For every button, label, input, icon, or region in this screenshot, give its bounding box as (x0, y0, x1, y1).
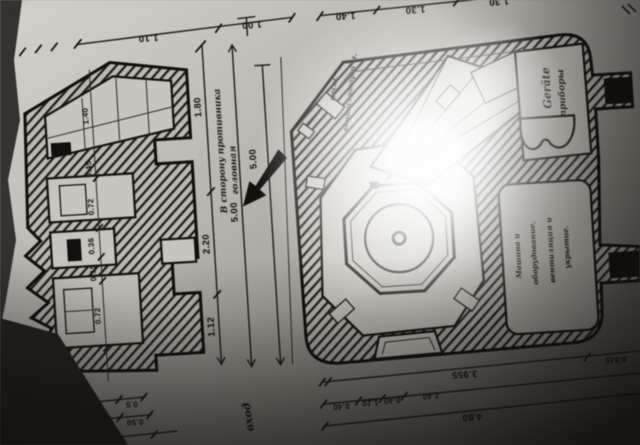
dim-mid-2: 2.20 (201, 234, 213, 255)
dim-section-2: 0.45 (84, 160, 94, 178)
section-room-small (50, 229, 116, 269)
dim-mid-1: 1.80 (192, 97, 204, 118)
dim-section-6: 0.72 (93, 307, 103, 325)
dim-top-left-2: 1.00 (241, 18, 262, 30)
plan-right-notch-1 (604, 77, 633, 105)
equipment-room-label-1: Geräte (539, 67, 555, 109)
dim-bl2-3: 0.50 (126, 417, 144, 427)
dim-br1-2: 0.845 (605, 355, 627, 365)
dim-section-5: 0.15 (88, 264, 98, 282)
dim-br2-2: 1.20 (361, 398, 379, 408)
dim-section-1: 1.40 (81, 107, 91, 125)
plan-block-c (306, 176, 325, 190)
dim-overall-1: 5.00 (229, 202, 241, 223)
dim-top-right-1: 1.40 (335, 9, 356, 21)
plan-right-notch-2 (608, 250, 640, 278)
dim-overall-2: 5.00 (247, 149, 259, 170)
dim-br2-3: 0.40 (383, 395, 401, 405)
dim-top-right-3: 1.30 (488, 0, 509, 7)
dim-bl1-2: 0.5 (125, 399, 138, 409)
section-door-black (51, 142, 72, 156)
dim-top-left-1: 1.10 (138, 32, 159, 44)
dim-section-4: 0.36 (87, 237, 97, 255)
section-niche (161, 238, 196, 264)
plan-drawing: насос вентилятор и м. Geräte приборы Маш… (274, 31, 640, 366)
dim-br3-1: 4.80 (462, 410, 483, 422)
dim-mid-3: 1.12 (206, 316, 218, 337)
dim-section-3: 0.72 (86, 198, 96, 216)
dim-br2-4: 2.40 (422, 391, 440, 401)
blueprint-sheet: 1.40 0.45 0.72 0.36 0.15 0.72 1.10 1.00 … (0, 0, 640, 445)
dim-br2-1: 0.40 (332, 402, 350, 412)
dim-top-right-2: 1.30 (405, 3, 426, 15)
dim-br1-1: 3.955 (451, 368, 478, 381)
blueprint-photo: 1.40 0.45 0.72 0.36 0.15 0.72 1.10 1.00 … (0, 0, 640, 445)
